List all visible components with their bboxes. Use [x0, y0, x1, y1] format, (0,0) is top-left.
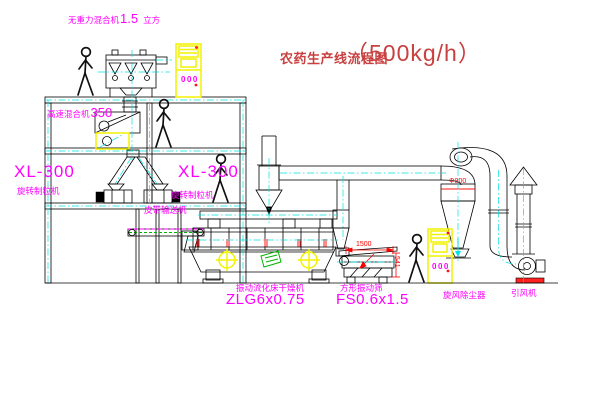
rotary-granulator-left [96, 184, 132, 203]
label-cyclone: 旋风除尘器 [443, 291, 486, 300]
title-capacity: （500kg/h） [345, 42, 482, 65]
vibrating-sieve [339, 247, 397, 283]
fluid-bed-dryer [189, 210, 349, 283]
control-cabinet-bottom [428, 229, 452, 283]
dim-cyclone-diameter: Φ800 [449, 178, 466, 185]
label-granulator-left-model: XL-300 [14, 163, 75, 180]
label-granulator-right-model: XL-300 [178, 163, 239, 180]
label-dryer-model: ZLG6x0.75 [226, 292, 305, 307]
worker-figure-second-floor [156, 100, 171, 147]
green-plate [261, 251, 281, 267]
dim-sieve-height: 541 [393, 256, 400, 268]
label-belt-conveyor: 皮带输送机 [144, 206, 187, 215]
zg-mixer-size: 1.5 [120, 12, 138, 25]
hs-mixer-size: 350 [91, 106, 113, 119]
induced-draft-fan [516, 258, 545, 284]
hs-mixer-name: 高速混合机 [47, 110, 90, 119]
zg-mixer-name: 无重力混合机 [68, 16, 119, 25]
label-granulator-left-name: 旋转制粒机 [17, 187, 60, 196]
label-zero-gravity-mixer: 无重力混合机1.5立方 [68, 12, 160, 25]
worker-figure-top-floor [78, 48, 93, 95]
label-granulator-right-name: 旋转制粒机 [171, 191, 214, 200]
label-fan: 引风机 [511, 289, 537, 298]
control-cabinet-top [176, 44, 201, 97]
exhaust-duct [256, 136, 475, 215]
label-sieve-model: FS0.6x1.5 [336, 292, 409, 307]
dim-sieve-length: 1500 [356, 241, 372, 248]
worker-figure-ground [409, 235, 424, 282]
label-high-speed-mixer: 高速混合机350 [47, 106, 112, 119]
zg-mixer-unit: 立方 [143, 16, 160, 25]
fan-base [516, 278, 544, 283]
cabinet-bottom-display: 000 [432, 263, 450, 271]
y-splitter-chute [109, 157, 163, 184]
cabinet-top-display: 000 [181, 76, 199, 84]
cad-flow-diagram: 农药生产线流程图 （500kg/h） 无重力混合机1.5立方 高速混合机350 … [0, 0, 600, 403]
